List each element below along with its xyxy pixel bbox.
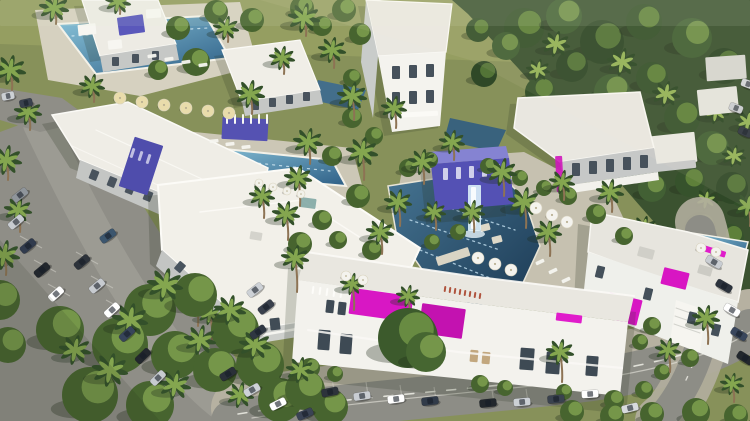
umbrella-pole — [566, 221, 568, 223]
ornament-grill — [469, 350, 478, 363]
palm-crown — [280, 56, 284, 60]
tree-highlight — [503, 381, 512, 390]
feature-slots — [469, 166, 474, 178]
tree-highlight — [430, 235, 439, 244]
tree-highlight — [641, 382, 651, 392]
aerial-scene-canvas — [0, 0, 750, 421]
palm-crown — [350, 282, 354, 286]
tree-highlight — [155, 61, 167, 73]
palm-crown — [127, 317, 133, 323]
car-glass — [393, 396, 400, 402]
umbrella-pole — [345, 275, 347, 277]
tree-highlight — [648, 404, 662, 418]
car-glass — [553, 396, 559, 402]
palm-crown — [704, 316, 708, 320]
palm-crown — [224, 26, 228, 30]
balcony-posts — [250, 114, 252, 124]
tree-highlight — [371, 128, 381, 138]
feature-slots — [443, 168, 448, 180]
car-glass — [327, 389, 334, 396]
palm-crown — [392, 106, 396, 110]
tree-highlight — [608, 406, 622, 420]
windows — [112, 57, 119, 66]
palm-crown — [608, 190, 612, 194]
palm-crown — [470, 210, 474, 214]
tree-highlight — [732, 406, 746, 420]
umbrella-pole — [715, 251, 717, 253]
umbrella-pole — [163, 104, 165, 106]
umbrella-pole — [207, 110, 209, 112]
indigo-balcony — [221, 117, 268, 141]
balcony-posts — [258, 114, 260, 124]
windows — [640, 155, 648, 168]
umbrella-pole — [477, 257, 479, 259]
palm-crown — [432, 210, 436, 214]
windows — [426, 90, 434, 103]
umbrella-pole — [119, 97, 121, 99]
tree-highlight — [329, 147, 341, 159]
windows — [606, 159, 614, 172]
tree-highlight — [349, 70, 359, 80]
balcony-posts — [242, 114, 244, 124]
palm-crown — [450, 140, 454, 144]
palm-crown — [197, 337, 202, 342]
palm-crown — [298, 368, 302, 372]
tree-highlight — [692, 400, 708, 416]
palm-crown — [293, 256, 297, 260]
palm-crown — [238, 393, 242, 397]
umbrella-pole — [510, 269, 512, 271]
umbrella-pole — [185, 107, 187, 109]
umbrella-pole — [551, 214, 553, 216]
palm-crown — [378, 230, 382, 234]
palm-crown — [420, 160, 424, 164]
tree-highlight — [477, 376, 487, 386]
palm-crown — [16, 208, 20, 212]
umbrella-pole — [300, 193, 302, 195]
tree-highlight — [593, 205, 605, 217]
windows — [589, 161, 597, 174]
tree-highlight — [354, 186, 368, 200]
palm-crown — [330, 48, 334, 52]
umbrella-pole — [286, 190, 288, 192]
umbrella-pole — [535, 207, 537, 209]
windows — [409, 65, 417, 78]
tree-highlight — [649, 318, 659, 328]
tree-highlight — [638, 335, 647, 344]
palm-crown — [3, 157, 8, 162]
window — [325, 300, 334, 314]
car-glass — [485, 400, 491, 406]
umbrella-pole — [272, 186, 274, 188]
car-glass — [519, 399, 525, 405]
umbrella-pole — [141, 101, 143, 103]
palm-crown — [730, 382, 734, 386]
palm-crown — [546, 230, 550, 234]
windows — [572, 163, 580, 176]
tree-highlight — [188, 276, 214, 302]
palm-crown — [227, 307, 232, 312]
tree-highlight — [568, 402, 582, 416]
palm-crown — [521, 199, 526, 204]
window — [337, 302, 346, 316]
palm-crown — [350, 94, 355, 99]
windows — [132, 54, 139, 63]
palm-crown — [162, 282, 168, 288]
windows — [392, 66, 400, 79]
palm-crown — [252, 342, 257, 347]
palm-crown — [260, 194, 264, 198]
tree-highlight — [687, 350, 697, 360]
windows — [426, 64, 434, 77]
car-glass — [587, 391, 593, 397]
palm-crown — [560, 180, 564, 184]
tree-highlight — [611, 391, 623, 403]
umbrella-pole — [258, 182, 260, 184]
palm-crown — [406, 294, 410, 298]
palm-crown — [90, 84, 94, 88]
palm-crown — [396, 200, 400, 204]
umbrella-pole — [228, 112, 230, 114]
palm-crown — [500, 170, 505, 175]
tree-highlight — [420, 335, 443, 358]
windows — [409, 91, 417, 104]
windows — [303, 92, 310, 101]
windows — [269, 318, 280, 331]
tree-highlight — [319, 211, 331, 223]
tree-highlight — [333, 367, 342, 376]
windows — [286, 95, 293, 104]
palm-crown — [284, 212, 288, 216]
tree-highlight — [518, 171, 527, 180]
palm-crown — [306, 140, 311, 145]
canopy-tent — [108, 39, 123, 49]
car-glass — [427, 398, 433, 404]
tree-highlight — [621, 228, 631, 238]
palm-crown — [296, 176, 300, 180]
umbrella-pole — [494, 263, 496, 265]
top-haze — [0, 0, 750, 26]
resort-aerial-rendering — [0, 0, 750, 421]
windows — [623, 157, 631, 170]
palm-crown — [248, 92, 253, 97]
umbrella-pole — [362, 279, 364, 281]
tree-highlight — [335, 232, 345, 242]
palm-crown — [666, 348, 670, 352]
palm-crown — [359, 149, 364, 154]
palm-crown — [172, 382, 177, 387]
palm-crown — [26, 110, 30, 114]
tree-highlight — [456, 225, 465, 234]
tree-highlight — [660, 365, 669, 374]
car-glass — [359, 393, 366, 399]
palm-crown — [7, 67, 12, 72]
windows — [269, 98, 276, 107]
tree-highlight — [562, 385, 571, 394]
balcony-posts — [266, 114, 268, 124]
palm-crown — [558, 350, 562, 354]
umbrella-pole — [700, 247, 702, 249]
feature-slots — [456, 167, 461, 179]
